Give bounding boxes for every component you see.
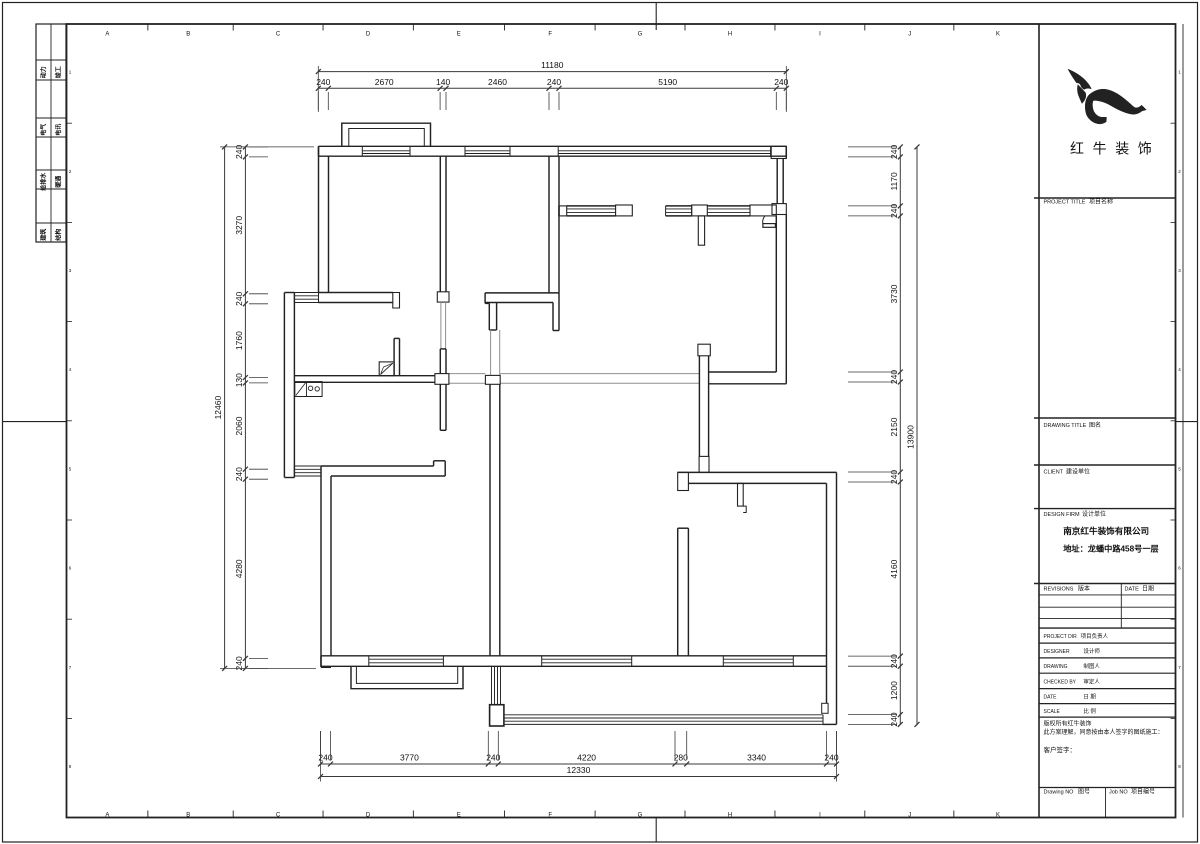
svg-text:5: 5 (69, 466, 72, 471)
svg-text:PROJECT DIR: PROJECT DIR (1044, 634, 1078, 640)
svg-text:制图人: 制图人 (1083, 662, 1100, 670)
svg-text:J: J (908, 812, 911, 818)
svg-text:280: 280 (674, 753, 688, 763)
svg-text:比 例: 比 例 (1083, 707, 1096, 715)
svg-text:I: I (819, 32, 821, 38)
svg-text:4220: 4220 (577, 753, 596, 763)
svg-text:项目名称: 项目名称 (1089, 198, 1113, 206)
svg-text:设计师: 设计师 (1083, 647, 1100, 655)
svg-text:地址：龙蟠中路458号一层: 地址：龙蟠中路458号一层 (1063, 544, 1159, 554)
svg-text:版权所有红牛装饰: 版权所有红牛装饰 (1044, 720, 1092, 728)
svg-text:Drawing NO: Drawing NO (1044, 790, 1075, 796)
svg-text:1: 1 (1178, 70, 1181, 75)
svg-text:B: B (186, 812, 190, 818)
svg-text:南京红牛装饰有限公司: 南京红牛装饰有限公司 (1063, 525, 1149, 536)
svg-text:Job NO: Job NO (1109, 790, 1128, 796)
svg-text:7: 7 (69, 665, 72, 670)
svg-text:F: F (548, 32, 552, 38)
svg-text:3: 3 (1178, 268, 1181, 273)
svg-text:1200: 1200 (889, 681, 899, 700)
svg-text:4280: 4280 (234, 559, 244, 578)
svg-text:项目负责人: 项目负责人 (1081, 632, 1109, 640)
svg-text:CHECKED BY: CHECKED BY (1044, 679, 1077, 685)
svg-text:3340: 3340 (747, 753, 766, 763)
svg-text:DATE: DATE (1125, 587, 1140, 593)
svg-text:2670: 2670 (375, 77, 394, 87)
svg-text:图号: 图号 (1078, 789, 1090, 796)
svg-text:5190: 5190 (658, 77, 677, 87)
svg-text:4160: 4160 (889, 559, 899, 578)
svg-text:3770: 3770 (400, 753, 419, 763)
svg-text:5: 5 (1178, 466, 1181, 471)
svg-text:8: 8 (1178, 764, 1181, 769)
svg-text:图名: 图名 (1089, 421, 1101, 429)
svg-text:8: 8 (69, 764, 72, 769)
svg-text:电气: 电气 (40, 124, 48, 136)
svg-text:3: 3 (69, 268, 72, 273)
svg-text:H: H (728, 812, 732, 818)
svg-text:给排水: 给排水 (40, 172, 48, 191)
svg-text:12460: 12460 (213, 396, 223, 420)
svg-text:2150: 2150 (889, 417, 899, 436)
svg-text:SCALE: SCALE (1044, 709, 1061, 715)
svg-text:C: C (276, 812, 281, 818)
svg-text:建筑: 建筑 (40, 229, 48, 241)
svg-text:D: D (366, 32, 371, 38)
svg-text:11180: 11180 (541, 60, 564, 70)
svg-text:6: 6 (69, 566, 72, 571)
svg-text:1: 1 (69, 70, 72, 75)
svg-text:240: 240 (234, 291, 244, 305)
svg-text:1760: 1760 (234, 331, 244, 350)
svg-text:2460: 2460 (488, 77, 507, 87)
svg-text:130: 130 (234, 373, 244, 387)
svg-text:3270: 3270 (234, 216, 244, 235)
svg-text:13900: 13900 (905, 425, 915, 449)
svg-text:C: C (276, 32, 281, 38)
svg-text:J: J (908, 32, 911, 38)
svg-text:红牛装饰: 红牛装饰 (1070, 142, 1160, 158)
svg-text:F: F (548, 812, 552, 818)
svg-text:E: E (457, 32, 461, 38)
svg-text:H: H (728, 32, 732, 38)
svg-text:3730: 3730 (889, 284, 899, 303)
svg-text:CLIENT: CLIENT (1044, 470, 1064, 476)
svg-text:6: 6 (1178, 566, 1181, 571)
svg-text:日 期: 日 期 (1083, 694, 1096, 701)
svg-text:PROJECT TITLE: PROJECT TITLE (1044, 200, 1086, 206)
svg-text:12330: 12330 (567, 765, 591, 775)
svg-text:DESIGN FIRM: DESIGN FIRM (1044, 512, 1080, 518)
svg-text:A: A (105, 812, 109, 818)
svg-text:7: 7 (1178, 665, 1181, 670)
svg-text:4: 4 (69, 367, 72, 372)
svg-text:电讯: 电讯 (55, 124, 63, 136)
svg-text:2: 2 (69, 169, 72, 174)
svg-text:暖通: 暖通 (55, 176, 63, 188)
svg-text:DRAWING TITLE: DRAWING TITLE (1044, 423, 1087, 429)
svg-text:140: 140 (436, 77, 450, 87)
svg-text:项目编号: 项目编号 (1131, 788, 1155, 796)
svg-text:4: 4 (1178, 367, 1181, 372)
svg-text:2: 2 (1178, 169, 1181, 174)
svg-text:K: K (996, 812, 1000, 818)
svg-text:G: G (638, 32, 643, 38)
svg-text:日期: 日期 (1142, 585, 1154, 593)
svg-text:B: B (186, 32, 190, 38)
svg-text:此方案理解，同意按由本人签字的图纸施工：: 此方案理解，同意按由本人签字的图纸施工： (1044, 728, 1164, 736)
svg-text:DESIGNER: DESIGNER (1044, 649, 1071, 655)
svg-text:2060: 2060 (234, 416, 244, 435)
svg-text:DRAWING: DRAWING (1044, 664, 1068, 670)
svg-text:G: G (638, 812, 643, 818)
svg-text:D: D (366, 812, 371, 818)
svg-text:客户签字：: 客户签字： (1044, 745, 1077, 754)
svg-text:E: E (457, 812, 461, 818)
svg-text:建设单位: 建设单位 (1066, 468, 1090, 476)
svg-text:240: 240 (234, 467, 244, 481)
svg-text:DATE: DATE (1044, 695, 1058, 701)
svg-text:动力: 动力 (40, 66, 48, 78)
svg-text:结构: 结构 (55, 229, 63, 241)
svg-text:设计单位: 设计单位 (1082, 510, 1106, 518)
svg-text:REVISIONS: REVISIONS (1044, 587, 1074, 593)
svg-text:A: A (105, 32, 109, 38)
svg-text:版本: 版本 (1078, 585, 1090, 593)
svg-text:1170: 1170 (889, 172, 899, 191)
svg-text:审定人: 审定人 (1083, 677, 1100, 685)
svg-text:K: K (996, 32, 1000, 38)
svg-text:竣工: 竣工 (55, 66, 63, 78)
svg-text:240: 240 (547, 77, 561, 87)
